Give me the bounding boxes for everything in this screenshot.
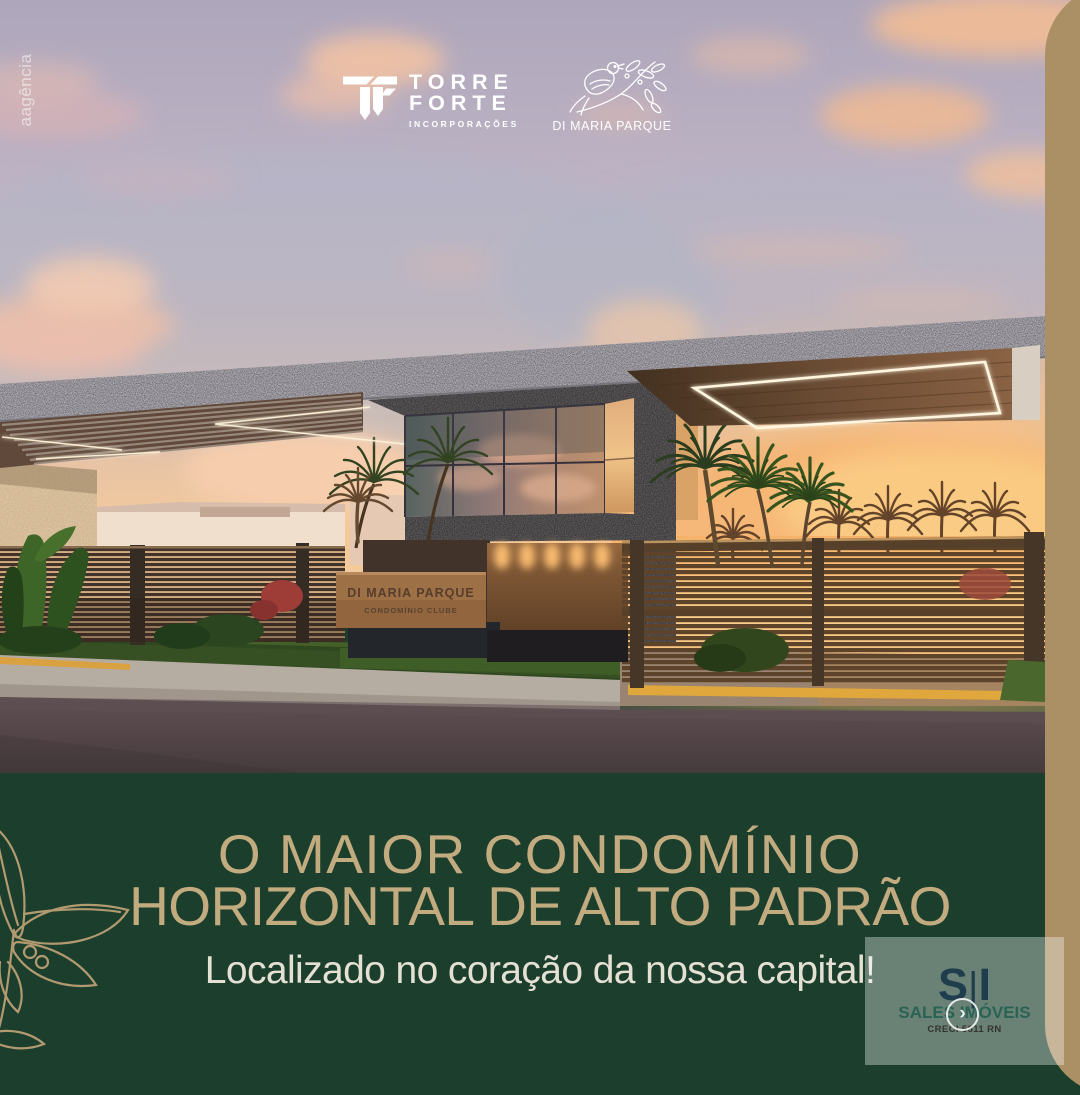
svg-text:CONDOMÍNIO CLUBE: CONDOMÍNIO CLUBE	[364, 606, 458, 615]
svg-text:DI MARIA PARQUE: DI MARIA PARQUE	[347, 586, 475, 600]
